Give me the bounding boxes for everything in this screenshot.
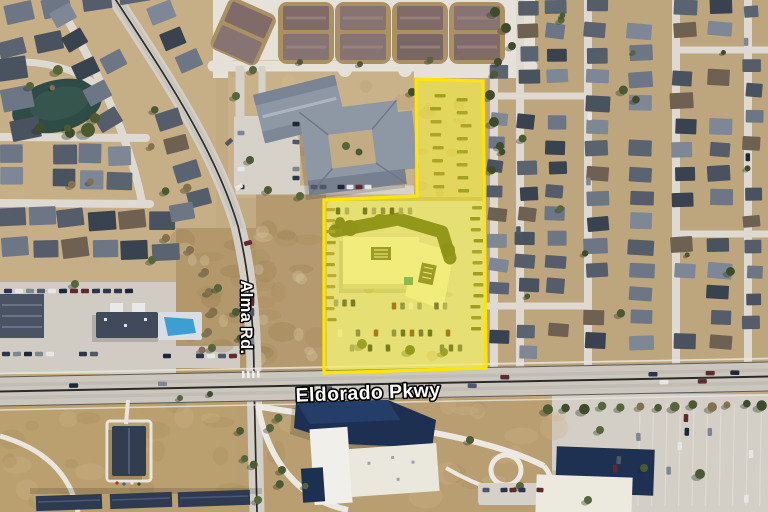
- tree: [266, 424, 274, 432]
- house-roof: [744, 5, 759, 18]
- house-roof: [545, 255, 567, 269]
- courtyard-tree: [356, 149, 363, 156]
- car: [48, 289, 56, 294]
- car: [587, 112, 592, 120]
- house-roof: [630, 191, 654, 206]
- tree: [232, 92, 240, 100]
- ground-texture: [277, 230, 296, 241]
- car: [648, 372, 657, 377]
- house-roof: [707, 69, 730, 86]
- car: [292, 122, 299, 127]
- house-roof: [744, 240, 761, 254]
- tree: [87, 178, 94, 185]
- car-dot: [130, 481, 133, 484]
- tree: [53, 65, 63, 75]
- roof-vent: [391, 456, 394, 459]
- car: [500, 375, 509, 380]
- house-roof: [0, 55, 28, 81]
- house-roof: [710, 0, 733, 14]
- house-roof: [549, 161, 567, 174]
- tree: [71, 280, 79, 288]
- tree: [582, 250, 588, 256]
- car: [684, 428, 689, 436]
- house-roof: [671, 142, 692, 158]
- house-roof: [120, 240, 148, 260]
- house-roof: [742, 215, 760, 228]
- house-roof: [583, 310, 604, 326]
- car: [698, 379, 707, 384]
- car: [744, 495, 749, 503]
- house-roof: [587, 216, 610, 232]
- house-roof: [518, 1, 539, 16]
- tree: [688, 400, 697, 409]
- house-roof: [670, 92, 694, 109]
- tree: [208, 344, 216, 352]
- tree: [695, 469, 705, 479]
- house-roof: [519, 69, 541, 83]
- ground-texture: [254, 264, 264, 275]
- house-roof: [489, 330, 509, 344]
- tree: [264, 186, 272, 194]
- house-roof: [711, 310, 731, 325]
- car: [79, 352, 87, 357]
- tree: [490, 7, 500, 17]
- tree: [254, 496, 262, 504]
- house-roof: [742, 59, 761, 72]
- car: [749, 450, 754, 458]
- house-roof: [118, 209, 147, 230]
- house-roof: [546, 277, 565, 294]
- tree: [278, 466, 286, 474]
- tree: [616, 403, 624, 411]
- white-roof: [535, 474, 632, 512]
- tree: [557, 205, 564, 212]
- tree: [274, 414, 282, 422]
- ground-texture: [213, 446, 228, 465]
- house-roof: [0, 144, 23, 162]
- house-roof: [707, 21, 732, 37]
- tree: [744, 165, 750, 171]
- roof-vent: [124, 324, 127, 327]
- car-dot: [115, 481, 118, 484]
- ground-texture: [175, 406, 194, 428]
- car: [616, 456, 621, 464]
- car: [69, 383, 78, 388]
- tree: [68, 181, 76, 189]
- house-roof: [707, 165, 731, 182]
- car: [509, 488, 516, 493]
- house-roof: [548, 323, 569, 338]
- house-roof: [487, 207, 507, 222]
- ground-texture: [25, 421, 39, 431]
- house-roof: [152, 243, 180, 261]
- tree: [707, 402, 717, 412]
- car: [364, 185, 371, 190]
- ground-texture: [294, 328, 304, 341]
- tree: [50, 85, 55, 90]
- roof-skylight: [110, 303, 123, 312]
- tree: [466, 436, 474, 444]
- house-roof: [628, 139, 652, 156]
- house-roof: [629, 335, 654, 350]
- tree: [148, 143, 155, 150]
- tree: [637, 403, 645, 411]
- tree: [249, 66, 257, 74]
- tree: [491, 70, 498, 77]
- tree: [525, 293, 531, 299]
- car: [730, 370, 739, 375]
- crosswalk-dash: [257, 371, 260, 378]
- car: [163, 354, 171, 359]
- tree: [151, 106, 158, 113]
- house-roof: [747, 265, 763, 278]
- ground-texture: [540, 415, 568, 440]
- tree: [199, 347, 206, 354]
- car: [677, 442, 682, 450]
- tree: [670, 402, 680, 412]
- ground-texture: [188, 254, 197, 266]
- house-roof: [674, 0, 698, 16]
- aerial-photo: Alma Rd. Eldorado Pkwy: [0, 0, 768, 512]
- house-roof: [674, 263, 696, 279]
- house-roof: [487, 234, 507, 248]
- car: [218, 354, 226, 359]
- crosswalk-dash: [247, 371, 250, 378]
- car: [706, 371, 715, 376]
- roof-vent: [367, 462, 370, 465]
- tree: [756, 400, 766, 410]
- house-roof: [745, 188, 762, 201]
- ground-texture: [59, 411, 77, 427]
- car: [586, 177, 591, 185]
- car: [13, 352, 21, 357]
- car: [516, 226, 521, 234]
- ground-texture: [75, 463, 105, 480]
- crosswalk-dash: [242, 371, 245, 378]
- tree: [508, 42, 516, 50]
- house-roof: [517, 23, 538, 38]
- house-roof: [706, 285, 729, 300]
- tree: [494, 58, 502, 66]
- school-building: [290, 400, 440, 505]
- tree: [302, 483, 308, 489]
- car: [659, 380, 668, 385]
- car: [35, 352, 43, 357]
- tree: [64, 125, 71, 132]
- tree: [35, 123, 45, 133]
- roof-ridge: [286, 46, 326, 49]
- tree: [204, 328, 212, 336]
- house-roof: [29, 206, 57, 225]
- roof-vent: [144, 318, 147, 321]
- house-roof: [78, 143, 101, 163]
- car: [613, 464, 618, 472]
- townhome-roof: [178, 490, 250, 508]
- car: [482, 488, 489, 493]
- house-roof: [710, 189, 733, 206]
- house-roof: [548, 231, 567, 246]
- ground-texture: [306, 350, 317, 361]
- tree: [632, 96, 640, 104]
- house-roof: [629, 286, 653, 301]
- house-roof: [0, 207, 26, 226]
- ground-texture: [75, 412, 100, 425]
- house-roof: [33, 240, 58, 258]
- house-roof: [586, 69, 609, 84]
- house-roof: [546, 69, 568, 83]
- car: [2, 352, 10, 357]
- tree: [241, 455, 248, 462]
- tree: [519, 135, 527, 143]
- house-roof: [742, 136, 761, 151]
- house-roof: [709, 334, 732, 350]
- car: [319, 185, 326, 190]
- house-roof: [626, 23, 652, 41]
- house-roof: [61, 236, 90, 259]
- car: [125, 289, 133, 294]
- house-roof: [585, 140, 609, 156]
- car: [70, 289, 78, 294]
- house-roof: [88, 211, 117, 232]
- tree: [596, 426, 604, 434]
- tree: [489, 117, 499, 127]
- car: [292, 140, 299, 145]
- ground-texture: [271, 282, 286, 302]
- tree: [26, 82, 34, 90]
- house-roof: [629, 263, 655, 279]
- roof-ridge: [457, 46, 497, 49]
- house-roof: [709, 118, 732, 135]
- house-roof: [674, 333, 696, 349]
- tree: [499, 149, 505, 155]
- tree: [214, 284, 222, 292]
- tree: [201, 268, 209, 276]
- car: [337, 185, 344, 190]
- ground-texture: [258, 314, 268, 325]
- house-roof: [53, 144, 77, 164]
- roof-skylight: [132, 303, 145, 312]
- car: [684, 414, 689, 422]
- house-roof: [670, 236, 693, 253]
- ground-texture: [64, 459, 78, 469]
- car: [81, 289, 89, 294]
- house-roof: [520, 46, 538, 61]
- house-roof: [93, 240, 119, 258]
- house-roof: [742, 316, 760, 330]
- small-building: [108, 426, 146, 486]
- tree: [236, 427, 244, 435]
- house-roof: [517, 160, 537, 175]
- house-roof: [628, 71, 653, 88]
- tree: [721, 50, 726, 55]
- school-roof-white-b: [348, 443, 439, 497]
- house-roof: [547, 49, 567, 62]
- car: [237, 167, 244, 172]
- ground-texture: [470, 403, 486, 419]
- house-roof: [710, 142, 731, 158]
- tree: [90, 113, 100, 123]
- house-roof: [745, 83, 762, 98]
- car: [310, 185, 317, 190]
- tree: [543, 404, 553, 414]
- car: [229, 354, 237, 359]
- roof-ridge: [400, 17, 440, 20]
- car: [707, 428, 712, 436]
- house-roof: [583, 22, 606, 39]
- house-roof: [1, 236, 29, 257]
- culdesac: [338, 63, 352, 77]
- house-roof: [630, 212, 652, 229]
- tree: [598, 402, 606, 410]
- courtyard-tree: [342, 142, 350, 150]
- tree: [207, 391, 213, 397]
- house-roof: [746, 110, 764, 123]
- ground-texture: [294, 234, 322, 244]
- house-roof: [545, 141, 565, 156]
- house-roof: [707, 238, 729, 252]
- house-roof: [519, 278, 540, 292]
- house-roof: [746, 294, 761, 306]
- car: [355, 185, 362, 190]
- aerial-map: Alma Rd. Eldorado Pkwy: [0, 0, 768, 512]
- house-roof: [673, 22, 697, 38]
- tree: [640, 464, 648, 472]
- house-roof: [517, 325, 535, 339]
- ground-texture: [268, 322, 297, 342]
- house-roof: [545, 0, 567, 14]
- car: [536, 488, 543, 493]
- tree: [723, 401, 730, 408]
- tree: [276, 480, 284, 488]
- tree: [183, 184, 191, 192]
- car: [292, 176, 299, 181]
- house-roof: [672, 192, 694, 207]
- house-roof: [548, 115, 566, 129]
- house-roof: [520, 187, 539, 201]
- tree: [427, 57, 434, 64]
- house-roof: [518, 206, 537, 222]
- house-roof: [106, 172, 132, 191]
- culdesac: [458, 63, 472, 77]
- tree: [560, 13, 565, 18]
- roof-ridge: [343, 17, 383, 20]
- house-roof: [545, 22, 566, 39]
- car: [636, 433, 641, 441]
- street: [0, 203, 150, 204]
- roof-ridge: [343, 46, 383, 49]
- house-roof: [630, 310, 652, 324]
- house-roof: [489, 282, 509, 295]
- tree: [726, 267, 735, 276]
- car: [237, 131, 244, 136]
- house-roof: [586, 262, 608, 277]
- house-roof: [108, 146, 131, 166]
- culdesac: [398, 63, 412, 77]
- car: [666, 467, 671, 475]
- car-dot: [137, 482, 140, 485]
- tree: [177, 395, 183, 401]
- ground-texture: [219, 314, 228, 327]
- car: [46, 352, 54, 357]
- house-roof: [675, 118, 697, 134]
- crosswalk-dash: [252, 371, 255, 378]
- tree: [743, 400, 751, 408]
- ground-texture: [296, 274, 307, 285]
- house-roof: [585, 95, 610, 112]
- tree: [561, 404, 569, 412]
- house-roof: [629, 167, 652, 183]
- house-roof: [586, 191, 609, 206]
- tree: [619, 86, 628, 95]
- car: [744, 38, 749, 46]
- tree: [685, 252, 690, 257]
- car: [26, 289, 34, 294]
- house-roof: [0, 167, 23, 185]
- tree: [209, 308, 218, 317]
- ground-texture: [201, 413, 220, 423]
- tree: [81, 123, 95, 137]
- house-roof: [672, 70, 693, 86]
- alma-rd-label: Alma Rd.: [237, 281, 255, 355]
- house-roof: [587, 0, 608, 11]
- tree: [162, 187, 170, 195]
- house-roof: [516, 113, 535, 130]
- car: [37, 289, 45, 294]
- car: [92, 289, 100, 294]
- car: [114, 289, 122, 294]
- tree: [246, 156, 254, 164]
- school-roof-white: [348, 443, 439, 497]
- ground-texture: [505, 428, 539, 445]
- tree: [631, 50, 636, 55]
- roof-ridge: [286, 17, 326, 20]
- house-roof: [586, 119, 608, 134]
- car: [196, 354, 204, 359]
- roof-vent: [397, 478, 400, 481]
- car-dot: [122, 482, 125, 485]
- house-roof: [675, 167, 695, 181]
- house-roof: [514, 253, 535, 268]
- tree: [579, 404, 590, 415]
- car: [158, 382, 167, 387]
- car: [24, 352, 32, 357]
- tree: [297, 59, 303, 65]
- car: [292, 167, 299, 172]
- tree: [488, 166, 496, 174]
- car: [346, 185, 353, 190]
- tree: [617, 309, 625, 317]
- house-roof: [585, 332, 606, 349]
- tree: [357, 61, 363, 67]
- ground-texture: [2, 454, 16, 469]
- house-roof: [587, 48, 608, 64]
- ground-texture: [200, 255, 210, 266]
- roof-ridge: [400, 46, 440, 49]
- apartment-main: [299, 99, 420, 196]
- tree: [186, 246, 194, 254]
- car: [518, 488, 525, 493]
- car: [4, 289, 12, 294]
- car: [90, 352, 98, 357]
- house-roof: [487, 185, 503, 197]
- car: [500, 488, 507, 493]
- car: [15, 289, 23, 294]
- house-roof: [519, 345, 537, 359]
- pool: [164, 317, 196, 336]
- roof-vent: [411, 461, 414, 464]
- roof-vent: [104, 318, 107, 321]
- tree: [485, 90, 495, 100]
